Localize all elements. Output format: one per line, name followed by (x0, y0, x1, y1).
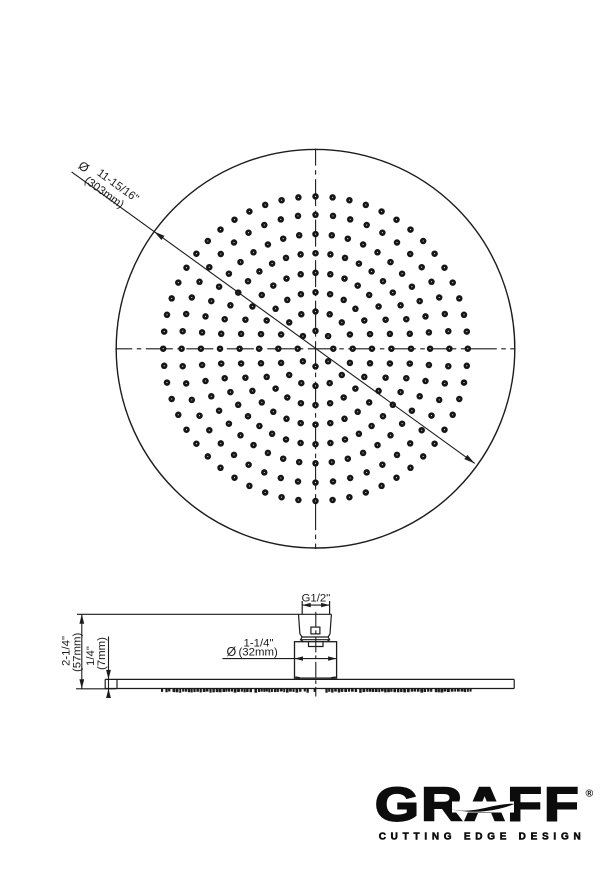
svg-text:(32mm): (32mm) (239, 647, 278, 659)
svg-text:®: ® (586, 788, 594, 800)
svg-text:(7mm): (7mm) (96, 637, 108, 670)
svg-text:(57mm): (57mm) (72, 633, 84, 672)
svg-text:Ø: Ø (227, 645, 237, 659)
svg-text:G1/2": G1/2" (302, 593, 331, 605)
